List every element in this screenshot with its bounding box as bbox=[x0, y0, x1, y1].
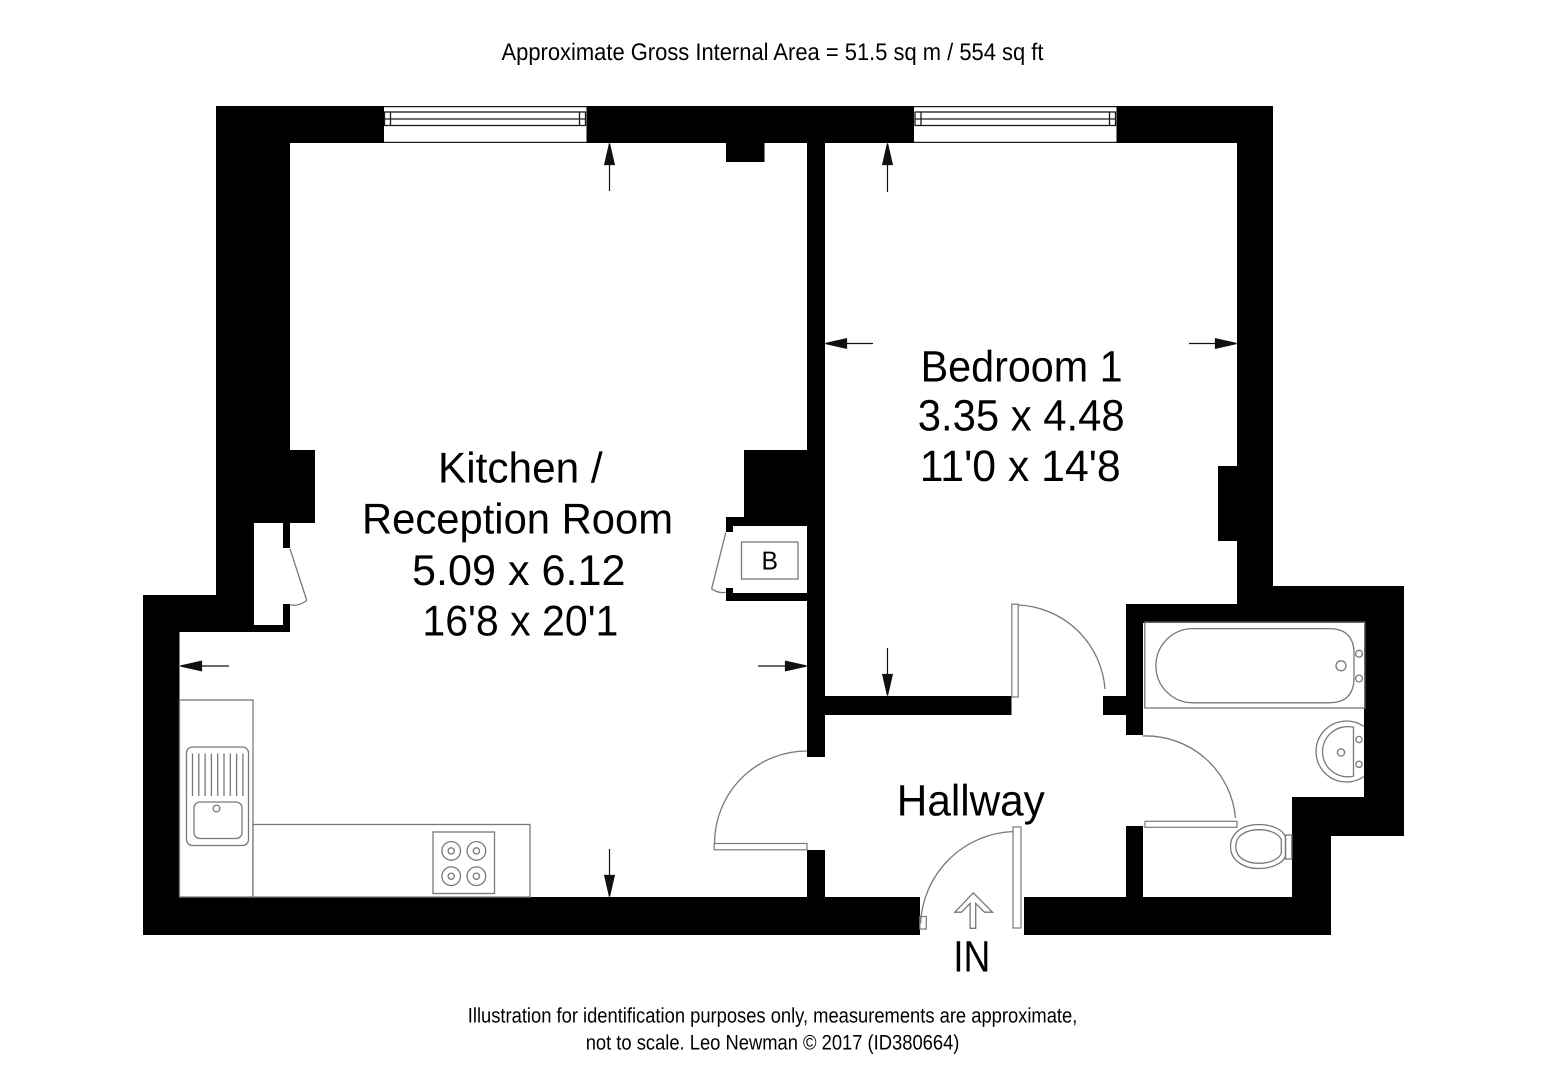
svg-text:B: B bbox=[762, 546, 779, 576]
svg-text:Approximate Gross Internal Are: Approximate Gross Internal Area = 51.5 s… bbox=[502, 39, 1044, 66]
svg-text:11'0 x 14'8: 11'0 x 14'8 bbox=[920, 442, 1121, 491]
svg-text:IN: IN bbox=[953, 932, 990, 981]
svg-text:Hallway: Hallway bbox=[897, 776, 1045, 825]
svg-text:Kitchen /: Kitchen / bbox=[438, 444, 603, 492]
svg-text:Reception Room: Reception Room bbox=[362, 496, 673, 544]
svg-text:Bedroom 1: Bedroom 1 bbox=[921, 342, 1123, 391]
svg-text:Illustration for identificatio: Illustration for identification purposes… bbox=[468, 1005, 1078, 1028]
svg-text:16'8 x 20'1: 16'8 x 20'1 bbox=[422, 597, 618, 645]
svg-text:3.35 x 4.48: 3.35 x 4.48 bbox=[918, 392, 1125, 441]
svg-text:5.09 x 6.12: 5.09 x 6.12 bbox=[412, 547, 626, 595]
svg-text:not to scale. Leo Newman © 201: not to scale. Leo Newman © 2017 (ID38066… bbox=[586, 1031, 960, 1054]
